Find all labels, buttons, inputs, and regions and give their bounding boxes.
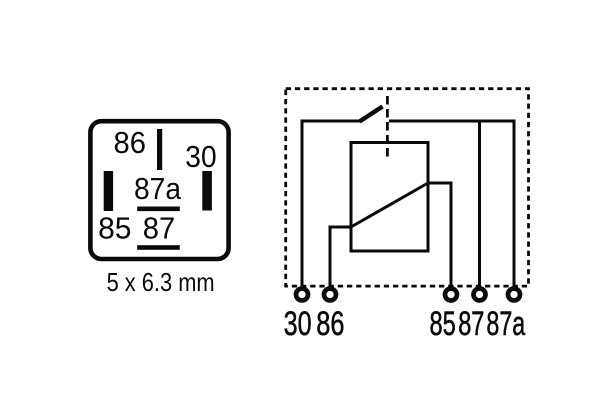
svg-text:87: 87 [143,210,175,245]
svg-text:87: 87 [458,305,484,343]
svg-text:85: 85 [430,305,456,343]
svg-text:30: 30 [284,305,312,343]
svg-text:86: 86 [316,305,344,343]
svg-text:87a: 87a [134,171,182,206]
svg-text:87a: 87a [486,305,525,343]
svg-text:30: 30 [185,139,216,174]
svg-text:85: 85 [98,210,131,245]
svg-text:86: 86 [114,125,147,160]
svg-text:5 x 6.3 mm: 5 x 6.3 mm [107,267,215,297]
